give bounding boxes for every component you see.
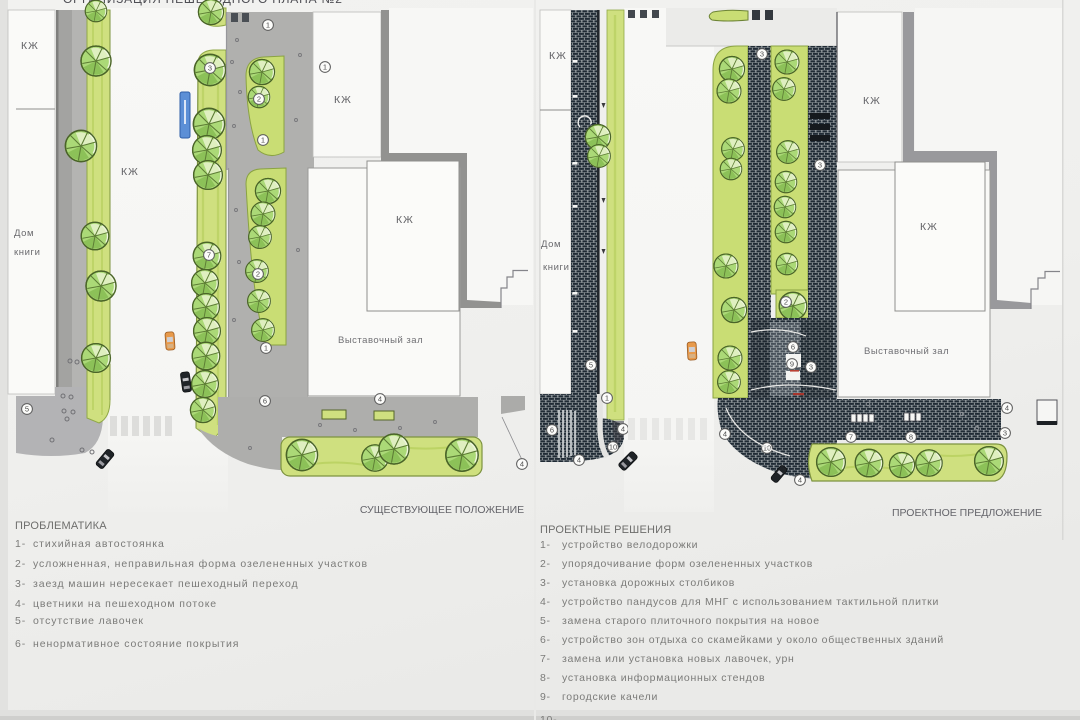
svg-text:Выставочный зал: Выставочный зал xyxy=(864,346,949,357)
svg-text:заезд машин нересекает пешеход: заезд машин нересекает пешеходный перехо… xyxy=(33,578,299,590)
svg-text:9-: 9- xyxy=(540,691,551,703)
svg-text:Выставочный зал: Выставочный зал xyxy=(338,335,423,346)
svg-text:КЖ: КЖ xyxy=(21,40,39,52)
svg-text:1-: 1- xyxy=(15,538,26,550)
svg-text:4: 4 xyxy=(798,476,802,485)
svg-text:устройство зон отдыха со скаме: устройство зон отдыха со скамейками у ок… xyxy=(562,634,944,646)
svg-text:6: 6 xyxy=(263,397,267,406)
svg-text:6: 6 xyxy=(791,343,795,352)
svg-text:2: 2 xyxy=(257,95,261,104)
svg-text:7-: 7- xyxy=(540,653,551,665)
svg-text:4: 4 xyxy=(577,456,581,465)
svg-text:6-: 6- xyxy=(540,634,551,646)
svg-text:устройство велодорожки: устройство велодорожки xyxy=(562,539,698,551)
svg-text:2-: 2- xyxy=(15,558,26,570)
svg-text:4: 4 xyxy=(723,430,727,439)
svg-text:3: 3 xyxy=(809,363,813,372)
svg-text:книги: книги xyxy=(543,262,569,273)
svg-text:6-: 6- xyxy=(15,638,26,650)
svg-text:8-: 8- xyxy=(540,672,551,684)
svg-text:КЖ: КЖ xyxy=(863,95,881,107)
svg-text:3: 3 xyxy=(1003,429,1007,438)
svg-text:устройство пандусов для МНГ с: устройство пандусов для МНГ с использова… xyxy=(562,596,939,608)
svg-text:КЖ: КЖ xyxy=(334,94,352,106)
svg-text:установка информационных стенд: установка информационных стендов xyxy=(562,672,765,684)
svg-text:3: 3 xyxy=(208,64,212,73)
svg-text:2: 2 xyxy=(784,298,788,307)
svg-text:5-: 5- xyxy=(15,615,26,627)
svg-text:3-: 3- xyxy=(540,577,551,589)
svg-text:4: 4 xyxy=(520,460,524,469)
svg-text:9: 9 xyxy=(790,360,794,369)
svg-text:замена или установка новых лав: замена или установка новых лавочек, урн xyxy=(562,653,795,665)
svg-text:ПРОБЛЕМАТИКА: ПРОБЛЕМАТИКА xyxy=(15,520,107,532)
svg-text:1: 1 xyxy=(605,394,609,403)
svg-text:усложненная, неправильная форм: усложненная, неправильная форма озеленен… xyxy=(33,558,368,570)
svg-text:СУЩЕСТВУЮЩЕЕ ПОЛОЖЕНИЕ: СУЩЕСТВУЮЩЕЕ ПОЛОЖЕНИЕ xyxy=(360,504,524,516)
svg-text:упорядочивание форм озелененны: упорядочивание форм озелененных участков xyxy=(562,558,813,570)
svg-text:5-: 5- xyxy=(540,615,551,627)
svg-text:отсутствие лавочек: отсутствие лавочек xyxy=(33,615,144,627)
svg-text:КЖ: КЖ xyxy=(396,214,414,226)
svg-text:Дом: Дом xyxy=(541,239,561,250)
svg-text:1: 1 xyxy=(266,21,270,30)
svg-text:КЖ: КЖ xyxy=(121,166,139,178)
svg-text:7: 7 xyxy=(849,433,853,442)
svg-text:цветники на пешеходном потоке: цветники на пешеходном потоке xyxy=(33,598,217,610)
svg-text:4-: 4- xyxy=(540,596,551,608)
svg-text:2-: 2- xyxy=(540,558,551,570)
svg-text:1: 1 xyxy=(323,63,327,72)
svg-text:4: 4 xyxy=(621,425,625,434)
svg-text:КЖ: КЖ xyxy=(549,50,567,62)
svg-text:ПРОЕКТНОЕ ПРЕДЛОЖЕНИЕ: ПРОЕКТНОЕ ПРЕДЛОЖЕНИЕ xyxy=(892,507,1042,519)
svg-text:3: 3 xyxy=(760,50,764,59)
svg-text:2: 2 xyxy=(256,270,260,279)
svg-text:1: 1 xyxy=(264,344,268,353)
svg-text:ПРОЕКТНЫЕ РЕШЕНИЯ: ПРОЕКТНЫЕ РЕШЕНИЯ xyxy=(540,524,671,536)
svg-text:5: 5 xyxy=(589,361,593,370)
svg-text:6: 6 xyxy=(550,426,554,435)
svg-text:замена старого плиточного покр: замена старого плиточного покрытия на но… xyxy=(562,615,820,627)
svg-text:ненормативное состояние покрыт: ненормативное состояние покрытия xyxy=(33,638,239,650)
svg-text:установка дорожных столбиков: установка дорожных столбиков xyxy=(562,577,735,589)
svg-text:10-: 10- xyxy=(540,714,557,720)
svg-text:4: 4 xyxy=(1005,404,1009,413)
svg-text:стихийная автостоянка: стихийная автостоянка xyxy=(33,538,165,550)
svg-text:10: 10 xyxy=(609,443,617,452)
svg-text:4-: 4- xyxy=(15,598,26,610)
svg-text:4: 4 xyxy=(378,395,382,404)
svg-text:книги: книги xyxy=(14,247,40,258)
svg-text:3-: 3- xyxy=(15,578,26,590)
svg-text:городские качели: городские качели xyxy=(562,691,658,703)
svg-text:8: 8 xyxy=(909,433,913,442)
svg-text:КЖ: КЖ xyxy=(920,221,938,233)
svg-text:1-: 1- xyxy=(540,539,551,551)
svg-text:5: 5 xyxy=(25,405,29,414)
svg-text:Дом: Дом xyxy=(14,228,34,239)
svg-text:7: 7 xyxy=(207,251,211,260)
svg-text:3: 3 xyxy=(818,161,822,170)
svg-text:1: 1 xyxy=(261,136,265,145)
